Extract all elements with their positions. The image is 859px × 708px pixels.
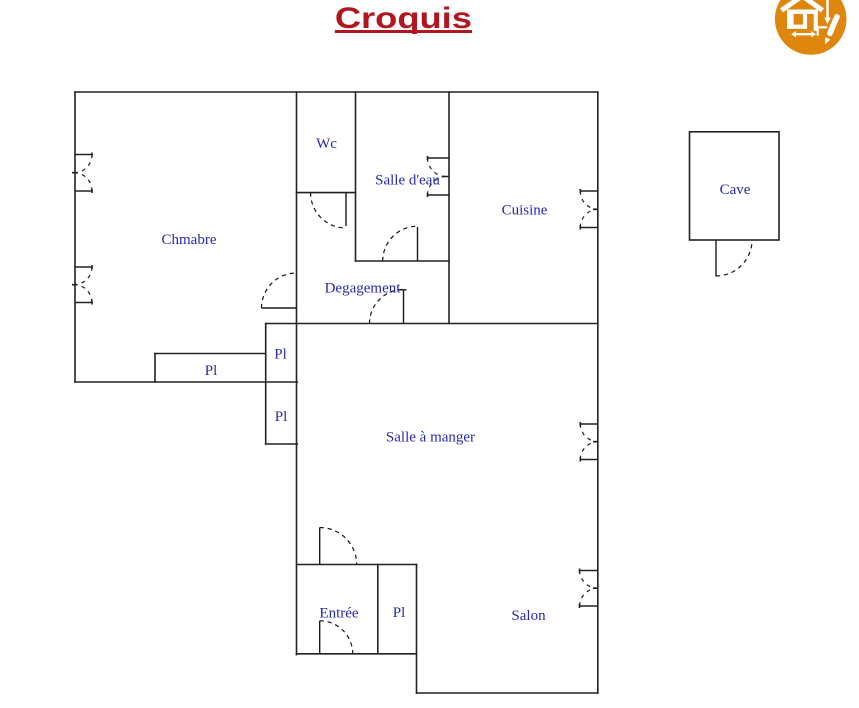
svg-text:Pl: Pl — [275, 409, 288, 425]
svg-text:Entrée: Entrée — [319, 606, 358, 622]
svg-text:Pl: Pl — [274, 347, 287, 363]
svg-text:Wc: Wc — [316, 136, 337, 152]
svg-text:Salon: Salon — [511, 608, 546, 624]
svg-text:Degagement: Degagement — [325, 281, 402, 297]
svg-text:Chmabre: Chmabre — [162, 232, 217, 248]
svg-text:Cuisine: Cuisine — [502, 203, 548, 219]
svg-text:Pl: Pl — [205, 363, 218, 379]
svg-text:Cave: Cave — [720, 182, 751, 198]
svg-text:Salle à manger: Salle à manger — [386, 430, 475, 446]
svg-text:Salle d'eau: Salle d'eau — [375, 173, 440, 189]
svg-text:Pl: Pl — [393, 605, 406, 621]
